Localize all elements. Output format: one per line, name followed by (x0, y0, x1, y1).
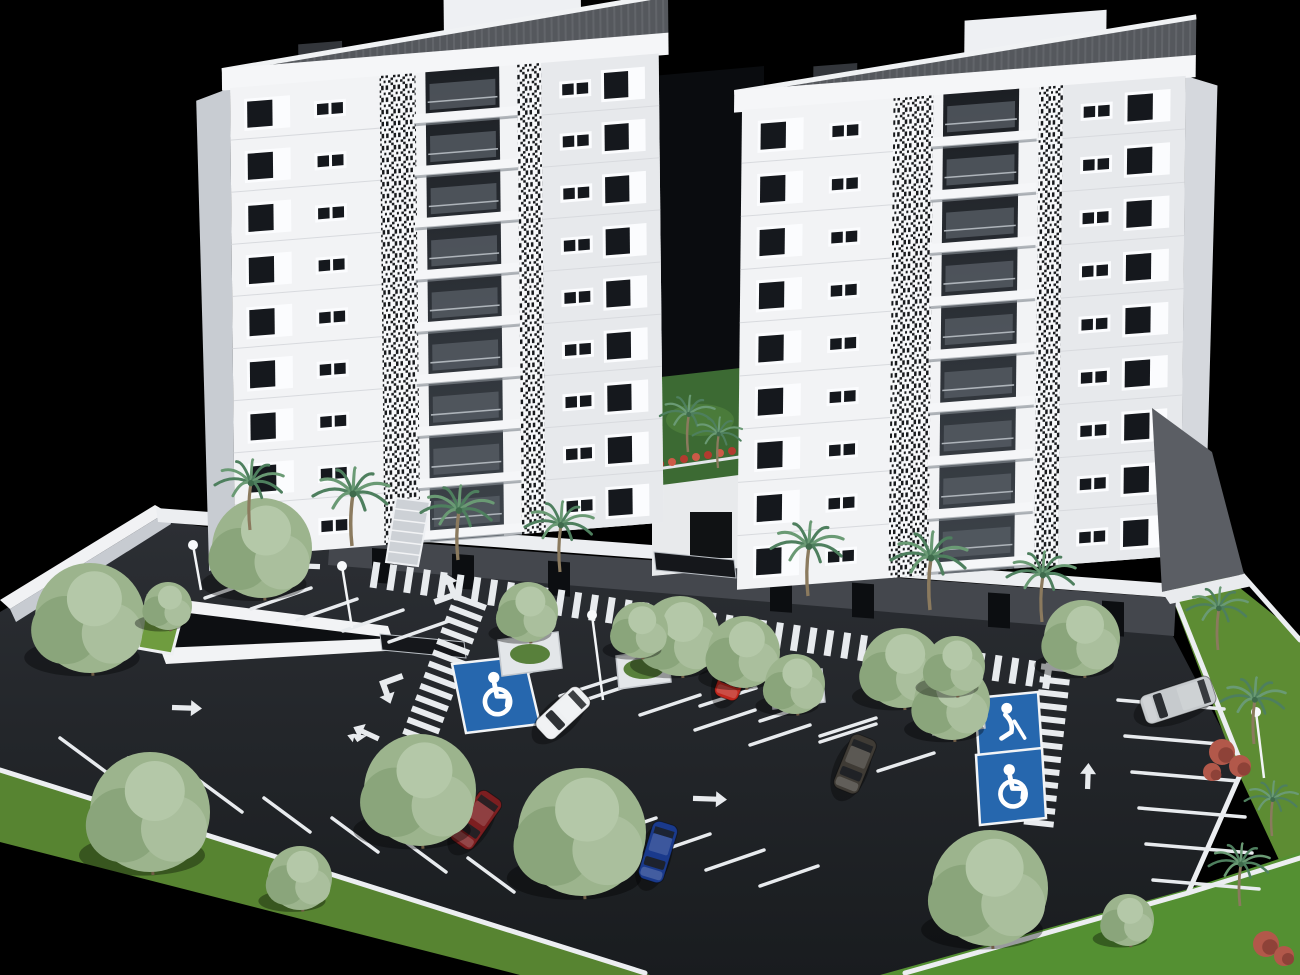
window-glass (1124, 466, 1149, 494)
window-glass (1098, 105, 1110, 117)
tree-foliage (729, 621, 765, 657)
window-glass (845, 337, 857, 349)
crosswalk-stripe (491, 580, 495, 606)
window-glass (563, 136, 575, 148)
tree-foliage (628, 606, 656, 634)
window-glass (320, 364, 332, 376)
window-glass (577, 82, 589, 94)
window-glass (832, 125, 844, 137)
window-glass (1094, 477, 1106, 489)
window-glass (1083, 212, 1095, 224)
palm-crown (928, 555, 935, 562)
red-flower-shrub (680, 455, 688, 463)
window-glass (1098, 158, 1110, 170)
window-glass (334, 310, 346, 322)
tree-foliage (158, 586, 182, 610)
palm-crown (1040, 572, 1046, 578)
balcony-glass (429, 79, 495, 110)
window-glass (605, 175, 629, 203)
balcony-glass (943, 527, 1011, 558)
window-glass (564, 292, 576, 304)
window-glass (759, 281, 784, 309)
window-glass (829, 444, 841, 456)
window-glass (607, 332, 631, 360)
window-glass (606, 280, 630, 308)
window-glass (832, 178, 844, 190)
tree-foliage (67, 571, 122, 626)
window-glass (1083, 159, 1095, 171)
window-glass (1124, 413, 1149, 441)
crosswalk-stripe (793, 625, 797, 651)
window-glass (845, 284, 857, 296)
balcony-glass (947, 101, 1015, 132)
balcony-glass (945, 261, 1013, 292)
lamp-globe (188, 540, 198, 550)
window-glass (757, 441, 782, 469)
window-glass (250, 360, 275, 388)
window-glass (831, 285, 843, 297)
window-glass (566, 448, 578, 460)
tree-foliage (966, 839, 1024, 897)
window-glass (320, 416, 332, 428)
window-glass (1095, 424, 1107, 436)
window-glass (830, 391, 842, 403)
window-glass (580, 395, 592, 407)
window-glass (563, 188, 575, 200)
window-glass (332, 154, 344, 166)
crosswalk-stripe (1029, 660, 1033, 686)
window-glass (578, 239, 590, 251)
tree-foliage (663, 602, 703, 642)
courtyard-door (690, 512, 732, 558)
architectural-rendering: 3D architectural rendering of twin white… (0, 0, 1300, 975)
window-glass (831, 232, 843, 244)
accessible-parking-spot (976, 748, 1046, 825)
window-glass (1081, 319, 1093, 331)
balcony-glass (432, 339, 498, 370)
palm-crown (1252, 697, 1258, 703)
palm-crown (1238, 862, 1244, 868)
crosswalk-stripe (474, 577, 478, 603)
crosswalk-stripe (1038, 692, 1068, 695)
crosswalk-stripe (1012, 658, 1016, 684)
window-glass (1125, 359, 1150, 387)
balcony-glass (431, 235, 497, 266)
window-glass (608, 436, 632, 464)
balcony-glass (433, 391, 499, 422)
crosswalk-stripe (373, 562, 377, 588)
balcony-glass (430, 131, 496, 162)
plinth-opening (988, 592, 1010, 628)
window-glass (828, 498, 840, 510)
window-glass (581, 499, 593, 511)
crosswalk-stripe (995, 655, 999, 681)
window-glass (1079, 531, 1091, 543)
balcony-glass (433, 444, 499, 475)
window-glass (1080, 425, 1092, 437)
tree-foliage (555, 778, 619, 842)
crosswalk-stripe (424, 570, 428, 596)
palm-crown (686, 412, 691, 417)
window-glass (759, 228, 784, 256)
window-glass (1084, 106, 1096, 118)
window-glass (843, 443, 855, 455)
window-glass (250, 412, 275, 440)
tree-foliage (515, 587, 545, 617)
perforated-panel-strip (889, 95, 934, 578)
crosswalk-stripe (1037, 705, 1067, 708)
perforated-panel-strip (1034, 85, 1063, 567)
window-glass (758, 334, 783, 362)
balcony-glass (944, 420, 1012, 451)
window-glass (333, 258, 345, 270)
window-glass (843, 497, 855, 509)
window-glass (761, 122, 786, 150)
window-glass (758, 388, 783, 416)
crosswalk-stripe (1040, 679, 1070, 682)
crosswalk-stripe (1024, 821, 1054, 824)
balcony-glass (946, 154, 1014, 185)
palm-crown (248, 480, 254, 486)
window-glass (760, 175, 785, 203)
balcony-glass (943, 473, 1011, 504)
crosswalk-stripe (390, 565, 394, 591)
tree-foliage (782, 659, 812, 689)
window-glass (847, 124, 859, 136)
crosswalk-stripe (407, 567, 411, 593)
window-glass (249, 256, 274, 284)
window-glass (336, 519, 348, 531)
window-glass (1081, 372, 1093, 384)
window-glass (577, 134, 589, 146)
window-glass (1080, 478, 1092, 490)
plinth-opening (852, 583, 874, 619)
red-flower-shrub (668, 458, 676, 466)
window-glass (319, 260, 331, 272)
window-glass (1095, 371, 1107, 383)
tree-foliage (125, 761, 185, 821)
crosswalk-stripe (844, 633, 848, 659)
red-shrub (1282, 953, 1294, 965)
window-glass (608, 488, 632, 516)
tree-foliage (287, 851, 319, 883)
window-glass (319, 312, 331, 324)
palm-crown (716, 432, 721, 437)
window-glass (562, 83, 574, 95)
window-glass (1126, 253, 1151, 281)
palm-crown (1216, 606, 1222, 612)
tree-foliage (1117, 898, 1143, 924)
window-glass (607, 384, 631, 412)
red-flower-shrub (704, 451, 712, 459)
crosswalk-stripe (810, 628, 814, 654)
window-glass (604, 71, 628, 99)
window-glass (317, 103, 329, 115)
window-glass (1123, 519, 1148, 547)
window-glass (1127, 93, 1152, 121)
window-glass (1126, 200, 1151, 228)
window-glass (604, 123, 628, 151)
crosswalk-stripe (608, 597, 612, 623)
window-glass (335, 415, 347, 427)
palm-crown (456, 507, 463, 514)
window-glass (248, 152, 273, 180)
tower-left (195, 0, 673, 572)
window-glass (846, 177, 858, 189)
window-glass (1094, 530, 1106, 542)
window-glass (756, 547, 781, 575)
window-glass (248, 204, 273, 232)
window-glass (565, 344, 577, 356)
window-glass (842, 550, 854, 562)
window-glass (318, 207, 330, 219)
window-glass (579, 291, 591, 303)
tree-foliage (1066, 606, 1104, 644)
red-flower-shrub (692, 453, 700, 461)
perforated-panel-strip (517, 63, 546, 534)
balcony-glass (945, 314, 1013, 345)
crosswalk-stripe (558, 590, 562, 616)
planter-soil (510, 644, 550, 664)
window-glass (1096, 318, 1108, 330)
balcony-glass (944, 367, 1012, 398)
crosswalk-stripe (827, 630, 831, 656)
window-glass (757, 494, 782, 522)
tree-foliage (396, 742, 452, 798)
window-glass (1097, 211, 1109, 223)
window-glass (247, 100, 272, 128)
red-shrub (1237, 762, 1250, 775)
red-flower-shrub (728, 447, 736, 455)
window-glass (318, 155, 330, 167)
window-glass (579, 343, 591, 355)
palm-crown (1270, 797, 1275, 802)
window-glass (249, 308, 274, 336)
lamp-globe (587, 610, 597, 620)
window-glass (1125, 306, 1150, 334)
balcony-glass (432, 287, 498, 318)
window-glass (565, 396, 577, 408)
perforated-panel-strip (380, 73, 421, 545)
palm-crown (558, 522, 564, 528)
lamp-globe (337, 561, 347, 571)
tree-foliage (942, 641, 972, 671)
window-glass (321, 520, 333, 532)
window-glass (846, 231, 858, 243)
window-glass (606, 227, 630, 255)
tree-foliage (885, 634, 925, 674)
balcony-glass (431, 183, 497, 214)
window-glass (578, 187, 590, 199)
crosswalk-stripe (575, 592, 579, 618)
window-glass (830, 338, 842, 350)
window-glass (844, 390, 856, 402)
window-glass (580, 447, 592, 459)
window-glass (333, 206, 345, 218)
window-glass (1082, 265, 1094, 277)
tower-right (729, 1, 1218, 602)
window-glass (1127, 147, 1152, 175)
palm-crown (806, 543, 813, 550)
window-glass (1096, 264, 1108, 276)
render-canvas (0, 0, 1300, 975)
window-glass (331, 102, 343, 114)
window-glass (564, 240, 576, 252)
balcony-glass (946, 207, 1014, 238)
red-shrub (1211, 770, 1222, 781)
palm-crown (350, 491, 357, 498)
window-glass (334, 363, 346, 375)
